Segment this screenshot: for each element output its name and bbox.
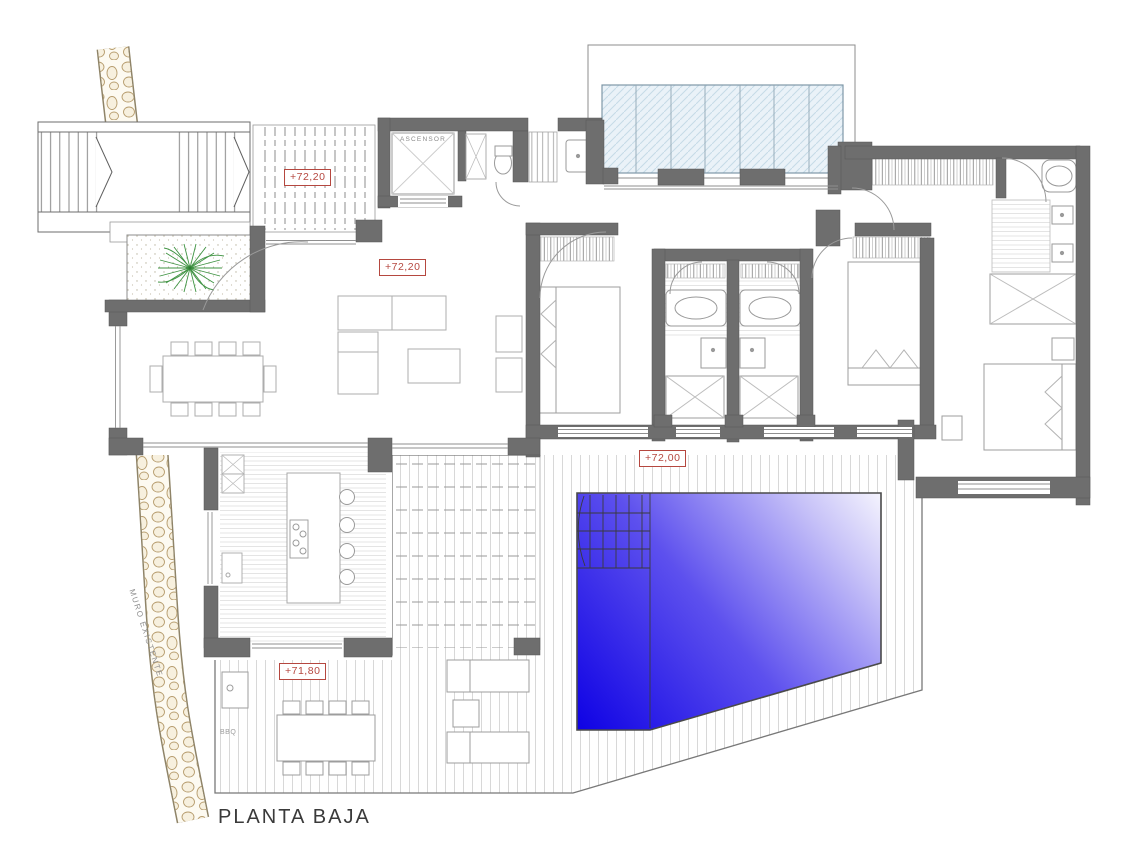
bbq-counter	[222, 672, 248, 708]
sun-lounger	[447, 660, 529, 692]
sun-lounger	[447, 732, 529, 763]
glass-roof	[588, 45, 855, 178]
bed	[848, 262, 926, 385]
stool	[942, 416, 962, 440]
vanity	[701, 338, 726, 368]
tv-unit	[496, 316, 522, 352]
level-label-pool-deck: +72,00	[639, 450, 686, 467]
pergola-slats	[392, 458, 538, 648]
planter	[127, 235, 252, 302]
exterior-stairs	[38, 122, 250, 242]
interior-stairs	[529, 132, 557, 182]
glass-panel	[602, 85, 843, 173]
nightstand	[1052, 338, 1074, 360]
bbq-label: BBQ	[220, 729, 236, 736]
terrace-table	[277, 715, 375, 761]
level-label-upper-terrace: +72,20	[284, 169, 331, 186]
elevator-label: ASCENSOR	[392, 136, 454, 143]
level-label-living: +72,20	[379, 259, 426, 276]
sofa-chaise	[338, 332, 378, 394]
kitchen	[220, 452, 386, 642]
dining-table	[163, 356, 263, 402]
level-label-bbq-terrace: +71,80	[279, 663, 326, 680]
floor-plan-drawing	[0, 0, 1140, 860]
bathtub	[1042, 160, 1076, 192]
plan-title: PLANTA BAJA	[218, 806, 371, 829]
coffee-table	[408, 349, 460, 383]
floor-plan-page: +72,20 +72,20 +72,00 +71,80 ASCENSOR BBQ…	[0, 0, 1140, 860]
side-table	[453, 700, 479, 727]
vanity	[740, 338, 765, 368]
